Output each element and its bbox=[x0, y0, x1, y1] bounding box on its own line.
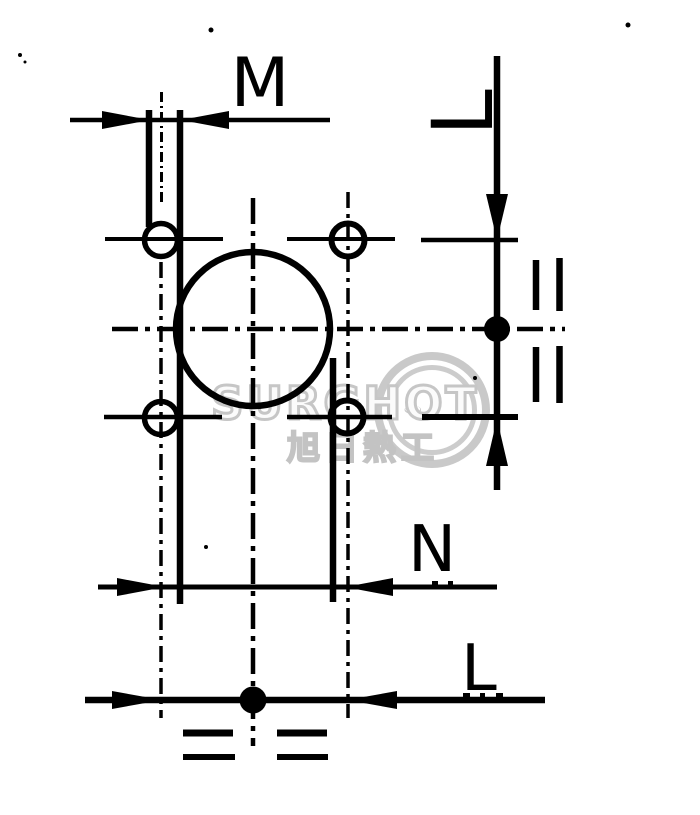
drawing-canvas: M L N L bbox=[0, 0, 700, 815]
arrowhead-down-icon bbox=[486, 194, 508, 240]
arrowhead-right-icon bbox=[102, 111, 150, 129]
arrowhead-up-icon bbox=[486, 419, 508, 466]
label-m: M bbox=[231, 44, 290, 123]
dimension-m bbox=[70, 111, 330, 129]
node-dot bbox=[484, 316, 510, 342]
drawing-sheet: ♨ SURGHOT 旭日熱工 bbox=[0, 0, 700, 815]
label-n: N bbox=[408, 513, 456, 587]
arrowhead-left-icon bbox=[181, 111, 229, 129]
node-dot bbox=[240, 687, 267, 714]
arrowhead-right-icon bbox=[112, 691, 162, 709]
arrowhead-left-icon bbox=[345, 578, 393, 596]
arrowhead-right-icon bbox=[117, 578, 165, 596]
label-l-vertical: L bbox=[414, 89, 512, 136]
label-l-horizontal: L bbox=[461, 632, 497, 706]
break-marks bbox=[183, 733, 328, 757]
arrowhead-left-icon bbox=[347, 691, 397, 709]
